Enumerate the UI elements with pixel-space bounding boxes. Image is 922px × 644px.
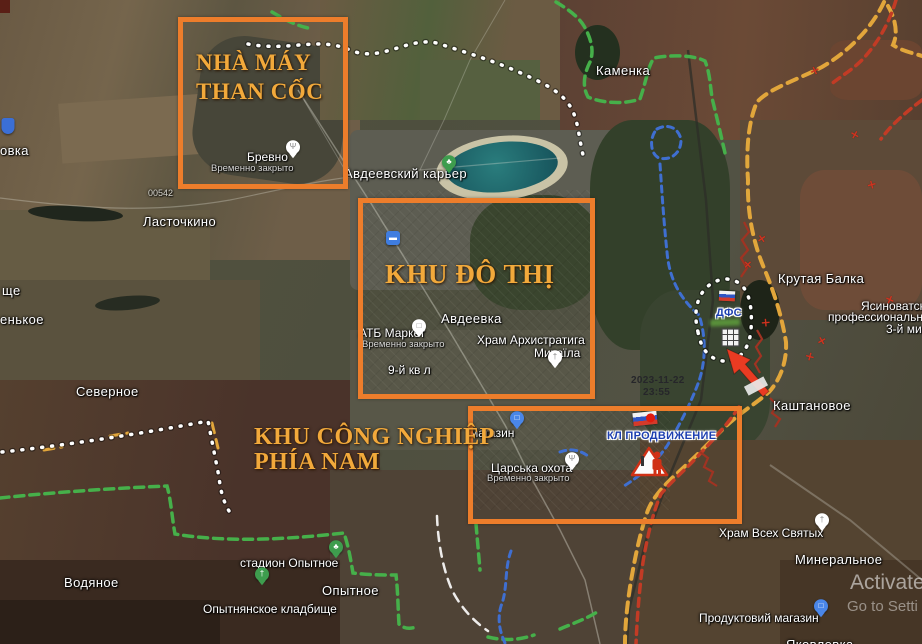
satellite-map-canvas[interactable]: овка00542ЛасточкинощеенькоеСеверноеВодян… — [0, 0, 922, 644]
activate-watermark-line1: Activate — [850, 571, 922, 595]
activate-watermark-line2: Go to Setti — [847, 598, 918, 615]
watermark-layer: Activate Go to Setti — [0, 0, 922, 644]
